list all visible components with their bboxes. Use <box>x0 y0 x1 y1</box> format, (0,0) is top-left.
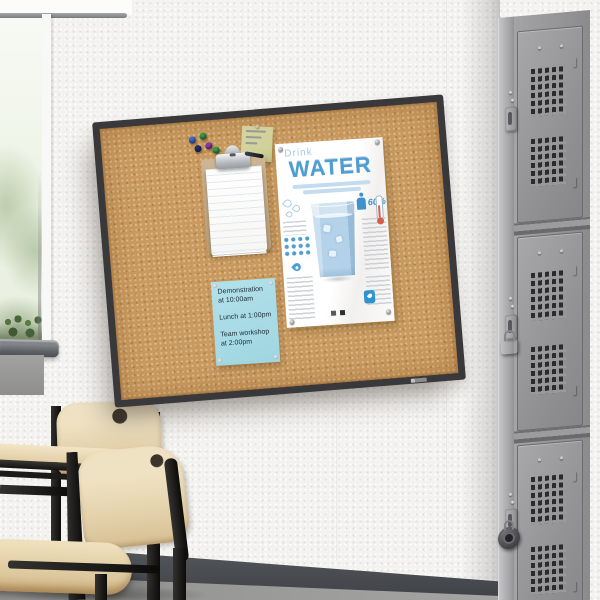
location-pin-icon <box>291 261 302 272</box>
locker-door-middle <box>517 232 583 432</box>
adjacent-locker-edge <box>590 9 600 600</box>
poster-text-block <box>366 275 392 307</box>
glass-shadow <box>322 274 354 283</box>
hinge <box>572 265 576 275</box>
person-icon-body <box>356 197 366 210</box>
clipboard-paper <box>206 165 268 255</box>
vent-grid <box>531 136 566 187</box>
poster-subtitle-line <box>292 180 370 189</box>
locker-latch <box>505 106 517 131</box>
clipboard-clip-hole <box>230 153 236 156</box>
droplet-outline-icon <box>282 198 293 209</box>
front-chair-slot <box>90 520 176 536</box>
rear-chair-slot <box>68 428 150 438</box>
rivet <box>511 501 514 504</box>
ice-cube <box>323 224 331 232</box>
droplet-grid-icon <box>284 236 312 259</box>
rivet <box>511 99 514 102</box>
push-pin <box>194 145 202 153</box>
poster-stat: 60% <box>367 196 386 207</box>
hinge <box>572 57 576 67</box>
wall-corner-shadow <box>462 0 500 600</box>
board-brand-mark <box>411 378 427 383</box>
person-icon <box>356 192 366 210</box>
hinge <box>572 177 576 187</box>
glass-body <box>308 201 363 280</box>
push-pin <box>218 359 222 363</box>
person-icon-head <box>359 193 363 197</box>
push-pin <box>278 147 283 152</box>
push-pin <box>212 146 220 154</box>
poster-footer-icon <box>340 310 345 315</box>
front-chair-slot <box>85 475 173 491</box>
schedule-note: Demonstration at 10:00am Lunch at 1:00pm… <box>211 278 280 366</box>
drink-water-poster: Drink WATER 60% <box>275 137 395 328</box>
vent-grid <box>531 66 566 117</box>
vent-grid <box>531 344 566 395</box>
sticky-note <box>241 126 273 162</box>
screw <box>560 44 563 47</box>
schedule-line: Team workshop <box>220 327 278 340</box>
push-pin <box>189 136 197 144</box>
handwriting-line <box>246 130 266 133</box>
screw <box>538 458 541 461</box>
poster-text-block <box>287 276 316 322</box>
front-chair-front-leg <box>95 574 107 600</box>
water-app-icon <box>364 290 376 304</box>
glass-rim <box>311 199 355 208</box>
schedule-line: Lunch at 1:00pm <box>219 310 277 323</box>
hinge <box>572 471 576 481</box>
table-crossbar <box>0 485 70 496</box>
front-chair-slot <box>86 490 176 506</box>
front-chair-circle-cutout <box>150 454 164 468</box>
push-pin <box>213 284 217 288</box>
office-corner-photo: Demonstration at 10:00am Lunch at 1:00pm… <box>0 0 600 600</box>
locker-door-bottom <box>517 440 583 600</box>
handwriting-line <box>245 142 257 145</box>
note-folded-corner <box>241 154 248 161</box>
rear-chair-circle-cutout <box>112 408 128 424</box>
ice-cube <box>329 250 336 256</box>
push-pin <box>205 142 213 150</box>
schedule-line: at 2:00pm <box>221 336 279 349</box>
ice-cube <box>335 235 342 242</box>
screw <box>560 249 563 252</box>
wall-panel-seam <box>336 392 338 560</box>
front-chair-right-leg <box>173 548 186 600</box>
screw <box>538 251 541 254</box>
schedule-line: Demonstration <box>217 284 275 297</box>
handwriting-line <box>246 136 262 139</box>
clipboard-clip <box>216 152 251 169</box>
locker-front <box>514 10 590 600</box>
poster-subtitle-line <box>303 187 361 195</box>
clipboard-board <box>201 155 271 253</box>
push-pin <box>274 355 278 359</box>
poster-footer-icon <box>331 311 336 316</box>
paper-stack-edge <box>213 250 267 257</box>
thermometer-icon <box>375 195 384 219</box>
front-chair-slot <box>88 504 178 520</box>
water-surface <box>314 212 352 219</box>
screw <box>538 46 541 49</box>
locker-unit <box>498 6 600 600</box>
push-pin <box>375 139 380 144</box>
padlock <box>501 338 518 354</box>
vent-grid <box>531 270 566 321</box>
window-jamb <box>38 170 41 342</box>
pen <box>245 151 264 158</box>
combination-lock <box>498 526 520 550</box>
poster-text-block <box>362 217 389 270</box>
poster-text-block <box>283 220 307 235</box>
bulletin-board: Demonstration at 10:00am Lunch at 1:00pm… <box>92 94 466 407</box>
window-frame <box>42 14 51 344</box>
clipboard-clip-lever <box>225 145 240 156</box>
droplet-outline-icon <box>292 204 302 214</box>
vent-grid <box>531 544 566 595</box>
poster-title: WATER <box>280 151 382 184</box>
clipboard <box>200 149 271 259</box>
rivet <box>511 305 514 308</box>
water-glass-illustration <box>308 201 363 280</box>
screw <box>560 456 563 459</box>
push-pin <box>255 124 260 129</box>
schedule-line: at 10:00am <box>218 293 276 306</box>
push-pin <box>199 132 207 140</box>
hinge <box>572 385 576 395</box>
droplet-outline-icon <box>285 210 293 218</box>
under-sill-panel <box>0 355 44 395</box>
push-pin <box>269 281 273 285</box>
poster-pretitle: Drink <box>284 147 313 160</box>
locker-door-top <box>517 26 583 224</box>
push-pin <box>289 319 294 324</box>
wall-upper-strip <box>0 0 132 14</box>
push-pin <box>386 309 391 314</box>
vent-grid <box>531 474 566 525</box>
